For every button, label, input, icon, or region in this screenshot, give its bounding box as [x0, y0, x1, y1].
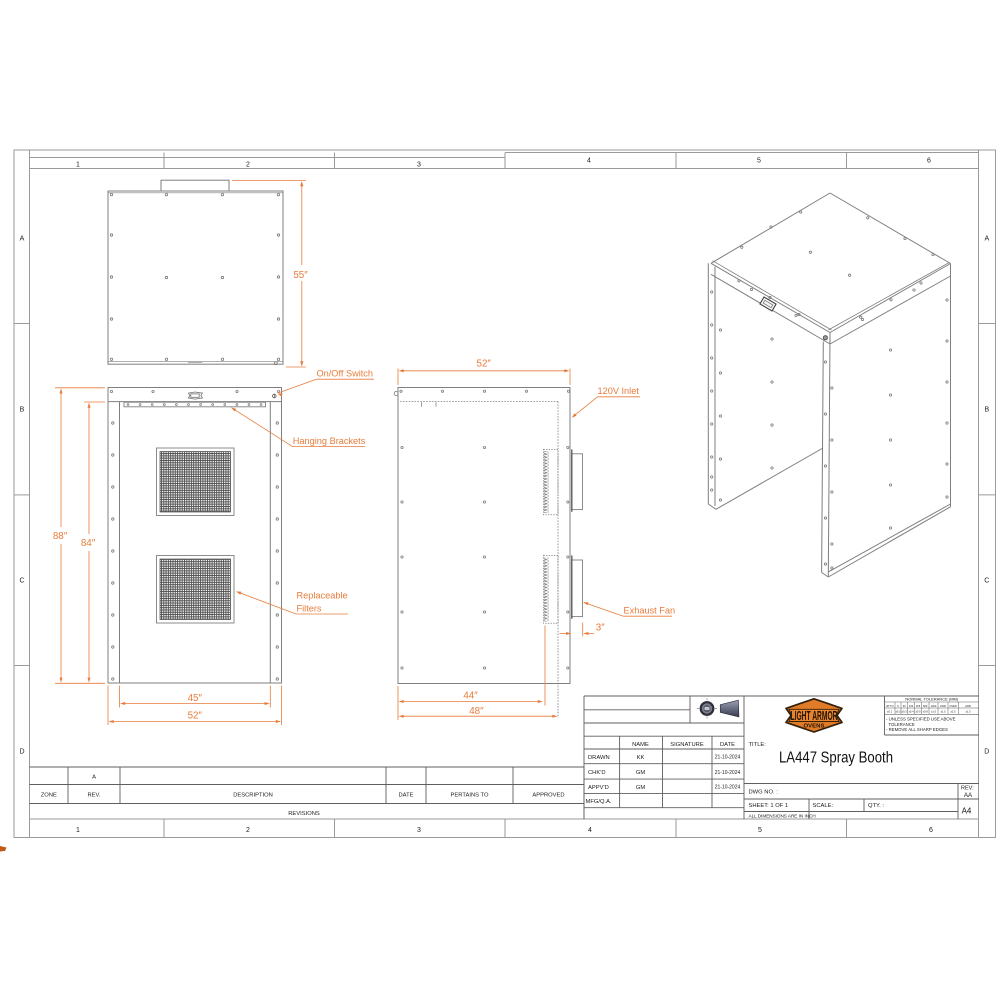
svg-text:NAME: NAME — [632, 742, 649, 748]
svg-text:120V Inlet: 120V Inlet — [598, 386, 640, 396]
svg-text:TITLE:: TITLE: — [749, 742, 767, 748]
svg-text:PERTAINS TO: PERTAINS TO — [451, 792, 489, 798]
svg-text:UP TO: UP TO — [886, 704, 894, 708]
svg-text:±0.4: ±0.4 — [908, 710, 914, 714]
svg-text:A: A — [20, 236, 25, 243]
svg-text:GM: GM — [636, 785, 646, 791]
svg-text:REV:: REV: — [961, 785, 974, 791]
svg-text:TOLERANCE: TOLERANCE — [889, 722, 915, 727]
svg-text:APPROVED: APPROVED — [532, 792, 564, 798]
svg-text:Filters: Filters — [297, 603, 322, 613]
svg-text:Replaceable: Replaceable — [297, 590, 348, 600]
svg-text:SHEET: 1 OF 1: SHEET: 1 OF 1 — [749, 803, 789, 809]
svg-text:4: 4 — [587, 158, 591, 165]
svg-text:D: D — [984, 749, 989, 756]
svg-text:2: 2 — [246, 827, 250, 834]
svg-text:21-10-2024: 21-10-2024 — [715, 785, 741, 791]
svg-text:45″: 45″ — [188, 693, 203, 704]
svg-text:ZONE: ZONE — [41, 792, 57, 798]
svg-text:REV.: REV. — [88, 792, 101, 798]
svg-text:NORMAL TOLERANCE (MM): NORMAL TOLERANCE (MM) — [905, 697, 958, 702]
svg-text:LIGHT ARMOR: LIGHT ARMOR — [791, 709, 838, 723]
svg-text:Hanging Brackets: Hanging Brackets — [293, 436, 366, 446]
svg-text:KK: KK — [637, 755, 645, 761]
svg-text:A: A — [984, 236, 989, 243]
svg-text:52″: 52″ — [477, 359, 492, 370]
svg-text:±1.5: ±1.5 — [940, 710, 946, 714]
svg-text:- REMOVE ALL SHARP EDGES: - REMOVE ALL SHARP EDGES — [886, 727, 948, 732]
svg-text:LA447 Spray Booth: LA447 Spray Booth — [779, 750, 893, 767]
svg-text:±1.0: ±1.0 — [931, 710, 937, 714]
svg-text:REVISIONS: REVISIONS — [288, 811, 320, 817]
svg-text:B: B — [984, 407, 989, 414]
svg-text:120: 120 — [909, 704, 914, 708]
svg-text:5: 5 — [757, 158, 761, 165]
svg-text:DRAWN: DRAWN — [588, 755, 610, 761]
svg-text:±0.2: ±0.2 — [895, 710, 901, 714]
svg-text:OVER: OVER — [949, 704, 956, 708]
svg-text:84″: 84″ — [81, 538, 96, 549]
svg-text:600: 600 — [923, 704, 928, 708]
svg-text:DATE: DATE — [398, 792, 413, 798]
svg-text:QTY. :: QTY. : — [868, 803, 884, 809]
svg-text:3″: 3″ — [596, 622, 605, 633]
svg-text:B: B — [20, 407, 25, 414]
svg-text:48″: 48″ — [469, 706, 484, 717]
svg-text:GM: GM — [636, 770, 646, 776]
svg-text:315: 315 — [916, 704, 921, 708]
svg-text:3: 3 — [417, 827, 421, 834]
svg-text:MFG/Q.A.: MFG/Q.A. — [586, 799, 612, 805]
svg-text:D: D — [19, 749, 24, 756]
svg-text:ALL DIMENSIONS ARE IN INCH: ALL DIMENSIONS ARE IN INCH — [749, 814, 816, 819]
svg-text:APPV'D: APPV'D — [588, 785, 609, 791]
svg-text:OVENS: OVENS — [804, 723, 825, 729]
svg-text:3: 3 — [417, 161, 421, 168]
svg-text:DESCRIPTION: DESCRIPTION — [233, 792, 273, 798]
svg-text:2400: 2400 — [940, 704, 946, 708]
svg-text:±1.5: ±1.5 — [965, 710, 971, 714]
svg-text:A: A — [92, 775, 96, 781]
svg-text:On/Off Switch: On/Off Switch — [317, 369, 374, 379]
svg-text:±1.5: ±1.5 — [950, 710, 956, 714]
svg-text:6: 6 — [927, 158, 931, 165]
svg-text:±0.1: ±0.1 — [887, 710, 893, 714]
svg-text:6: 6 — [897, 704, 899, 708]
svg-text:1200: 1200 — [931, 704, 937, 708]
svg-text:CHK'D: CHK'D — [588, 770, 606, 776]
svg-text:C: C — [19, 578, 24, 585]
svg-text:C: C — [984, 578, 989, 585]
svg-text:30: 30 — [903, 704, 906, 708]
svg-text:±0.8: ±0.8 — [923, 710, 929, 714]
svg-text:88″: 88″ — [53, 531, 68, 542]
svg-text:4: 4 — [588, 827, 592, 834]
svg-text:±0.3: ±0.3 — [902, 710, 908, 714]
svg-text:1: 1 — [76, 827, 80, 834]
svg-text:SCALE:: SCALE: — [813, 803, 834, 809]
svg-text:2: 2 — [246, 161, 250, 168]
svg-text:Exhaust Fan: Exhaust Fan — [624, 606, 676, 616]
svg-text:44″: 44″ — [463, 691, 478, 702]
svg-text:21-10-2024: 21-10-2024 — [715, 755, 741, 761]
svg-text:52″: 52″ — [188, 711, 203, 722]
svg-text:±0.5: ±0.5 — [915, 710, 921, 714]
svg-text:DWG NO. :: DWG NO. : — [749, 789, 779, 795]
svg-text:A4: A4 — [962, 807, 972, 816]
svg-text:5: 5 — [758, 827, 762, 834]
svg-text:2400: 2400 — [965, 704, 971, 708]
svg-text:AA: AA — [964, 792, 973, 799]
svg-text:SIGNATURE: SIGNATURE — [670, 742, 704, 748]
svg-text:55″: 55″ — [293, 270, 308, 281]
svg-text:- UNLESS SPECIFIED USE ABOVE: - UNLESS SPECIFIED USE ABOVE — [886, 717, 956, 722]
svg-text:1: 1 — [76, 161, 80, 168]
svg-text:6: 6 — [929, 827, 933, 834]
svg-text:21-10-2024: 21-10-2024 — [715, 770, 741, 776]
svg-text:DATE: DATE — [720, 742, 735, 748]
